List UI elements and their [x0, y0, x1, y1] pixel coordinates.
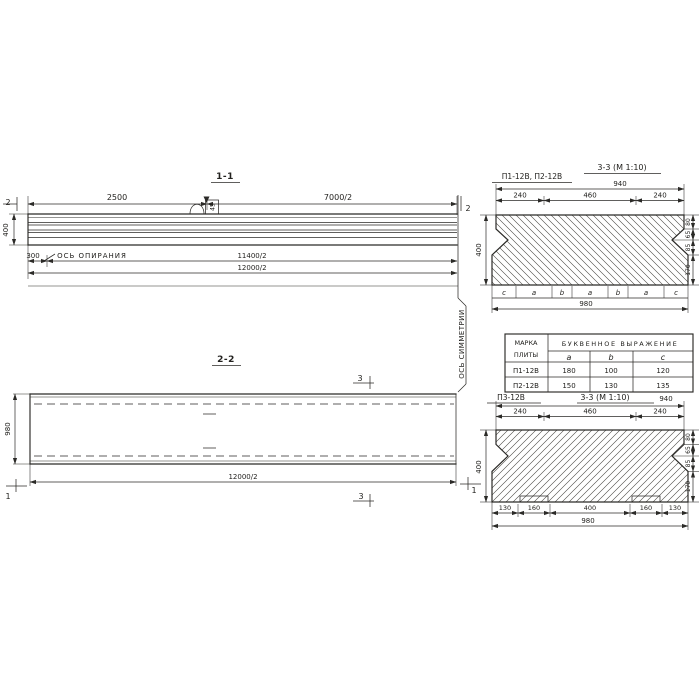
cell-p1-c: 120 — [656, 367, 669, 375]
bottom-dim-130r: 130 — [669, 504, 681, 512]
section-3-3-p1-p2-view: 3-3 (М 1:10) П1-12В, П2-12В 940 240 460 … — [475, 163, 699, 313]
right-dim-80-a: 80 — [685, 218, 692, 226]
plate-marks-label: П1-12В, П2-12В — [502, 172, 562, 181]
table-row-p1: П1-12В 180 100 120 — [513, 367, 670, 375]
cut-marker-1-left-label: 1 — [5, 492, 10, 501]
bottom-dim-160r: 160 — [640, 504, 652, 512]
dim-label-240r-b: 240 — [653, 408, 666, 416]
symmetry-axis: ОСЬ СИММЕТРИИ — [458, 195, 466, 392]
dim-label-240r-a: 240 — [653, 192, 666, 200]
cut-marker-1-right-label: 1 — [471, 486, 476, 495]
dim-label-400: 400 — [2, 223, 10, 236]
cut-marker-3-bottom: 3 — [353, 492, 374, 507]
dim-label-940-b: 940 — [659, 395, 672, 403]
plan-length-dim: 12000/2 — [30, 464, 456, 486]
cut-marker-3-bottom-label: 3 — [358, 492, 363, 501]
cut-marker-3-top-label: 3 — [357, 374, 362, 383]
section-3-3a-title: 3-3 (М 1:10) — [597, 163, 646, 172]
letter-a-2: a — [588, 289, 592, 297]
cut-marker-1-right: 1 — [460, 477, 481, 495]
top-dim-chain — [28, 196, 457, 215]
lifting-loop: 45 — [190, 197, 219, 215]
letter-c-1: c — [502, 289, 506, 297]
cell-mark-p2: П2-12В — [513, 382, 539, 390]
dim-label-240l-a: 240 — [513, 192, 526, 200]
section-1-1-view: 1-1 2500 7000/2 2 2 — [2, 172, 471, 286]
section-2-2-view: 2-2 980 12000/2 — [4, 355, 481, 507]
lifting-loop-label: 45 — [210, 203, 217, 211]
cut-marker-2-right-label: 2 — [465, 204, 470, 213]
section-2-2-title: 2-2 — [217, 355, 235, 365]
letter-b-1: b — [560, 289, 565, 297]
plan-outline — [30, 394, 456, 464]
bottom-dim-chain-b: 130 160 400 160 130 — [492, 502, 688, 517]
plate-mark-p3-label: П3-12В — [497, 393, 525, 402]
cell-p2-a: 150 — [562, 382, 575, 390]
bottom-dim-980-b: 980 — [492, 517, 688, 530]
cut-marker-3-top: 3 — [353, 374, 374, 389]
letter-a-1: a — [532, 289, 536, 297]
dim-label-300: 300 — [26, 252, 39, 260]
cut-marker-2-left: 2 — [3, 197, 17, 211]
dim-label-940-a: 940 — [613, 180, 626, 188]
cut-marker-2-right: 2 — [461, 196, 471, 213]
letter-c-2: c — [674, 289, 678, 297]
cross-section-p1-p2 — [492, 215, 688, 285]
dim-label-240l-b: 240 — [513, 408, 526, 416]
dimension-table: МАРКА ПЛИТЫ БУКВЕННОЕ ВЫРАЖЕНИЕ a b c П1… — [505, 334, 693, 392]
bottom-dim-160l: 160 — [528, 504, 540, 512]
bottom-dim-130l: 130 — [499, 504, 511, 512]
table-col-b: b — [608, 353, 613, 362]
right-dim-80-b: 80 — [685, 433, 692, 441]
right-dim-170-a: 170 — [685, 264, 692, 276]
dim-label-2500: 2500 — [107, 193, 127, 202]
right-dim-85-a: 85 — [685, 244, 692, 252]
plan-width-dim-980: 980 — [4, 394, 30, 464]
section-3-3b-title: 3-3 (М 1:10) — [580, 393, 629, 402]
right-dim-85-b: 85 — [685, 460, 692, 468]
dim-label-400-a: 400 — [475, 243, 483, 256]
table-row-p2: П2-12В 150 130 135 — [513, 382, 670, 390]
symmetry-axis-label: ОСЬ СИММЕТРИИ — [458, 309, 466, 379]
cell-p1-a: 180 — [562, 367, 575, 375]
dim-label-980-b: 980 — [581, 517, 594, 525]
cell-p2-b: 130 — [604, 382, 617, 390]
bottom-dim-400: 400 — [584, 504, 596, 512]
cross-section-p3 — [492, 430, 688, 502]
dim-label-400-b: 400 — [475, 460, 483, 473]
lifting-loop-arc — [190, 204, 204, 214]
dim-label-12000-2-plan: 12000/2 — [228, 473, 257, 481]
section-3-3-p3-view: П3-12В 3-3 (М 1:10) 940 240 460 240 — [475, 393, 699, 530]
dim-240-460-240-a: 240 460 240 — [496, 192, 684, 206]
table-header-mark-line1: МАРКА — [514, 339, 538, 347]
table-header-mark-line2: ПЛИТЫ — [514, 351, 539, 359]
dim-label-7000-2: 7000/2 — [324, 193, 352, 202]
letter-b-2: b — [616, 289, 621, 297]
right-dim-65-a: 65 — [685, 231, 692, 239]
beam-elevation — [28, 214, 457, 245]
cut-marker-1-left: 1 — [5, 479, 27, 501]
bearing-axis-label: ОСЬ ОПИРАНИЯ — [57, 252, 127, 260]
dim-label-11400-2: 11400/2 — [237, 252, 266, 260]
letter-a-3: a — [644, 289, 648, 297]
drawing-canvas: 1-1 2500 7000/2 2 2 — [0, 0, 700, 700]
dim-label-980-a: 980 — [579, 300, 592, 308]
table-header-expression: БУКВЕННОЕ ВЫРАЖЕНИЕ — [562, 340, 679, 348]
bottom-dim-980-a: 980 — [492, 298, 688, 313]
right-dim-170-b: 170 — [685, 481, 692, 493]
drawing-sheet: 1-1 2500 7000/2 2 2 — [0, 0, 700, 700]
cell-mark-p1: П1-12В — [513, 367, 539, 375]
dim-label-460-a: 460 — [583, 192, 596, 200]
cell-p1-b: 100 — [604, 367, 617, 375]
right-dim-65-b: 65 — [685, 446, 692, 454]
section-1-1-title: 1-1 — [216, 172, 234, 182]
dim-label-12000-2: 12000/2 — [237, 264, 266, 272]
letter-dim-row: c a b a b a c — [492, 285, 688, 298]
cell-p2-c: 135 — [656, 382, 669, 390]
table-col-a: a — [567, 353, 572, 362]
height-dim-400: 400 — [2, 214, 28, 245]
table-col-c: c — [661, 353, 666, 362]
dim-240-460-240-b: 240 460 240 — [496, 408, 684, 422]
dim-label-980-plan: 980 — [4, 422, 12, 435]
cut-marker-2-left-label: 2 — [5, 198, 10, 207]
dim-label-460-b: 460 — [583, 408, 596, 416]
